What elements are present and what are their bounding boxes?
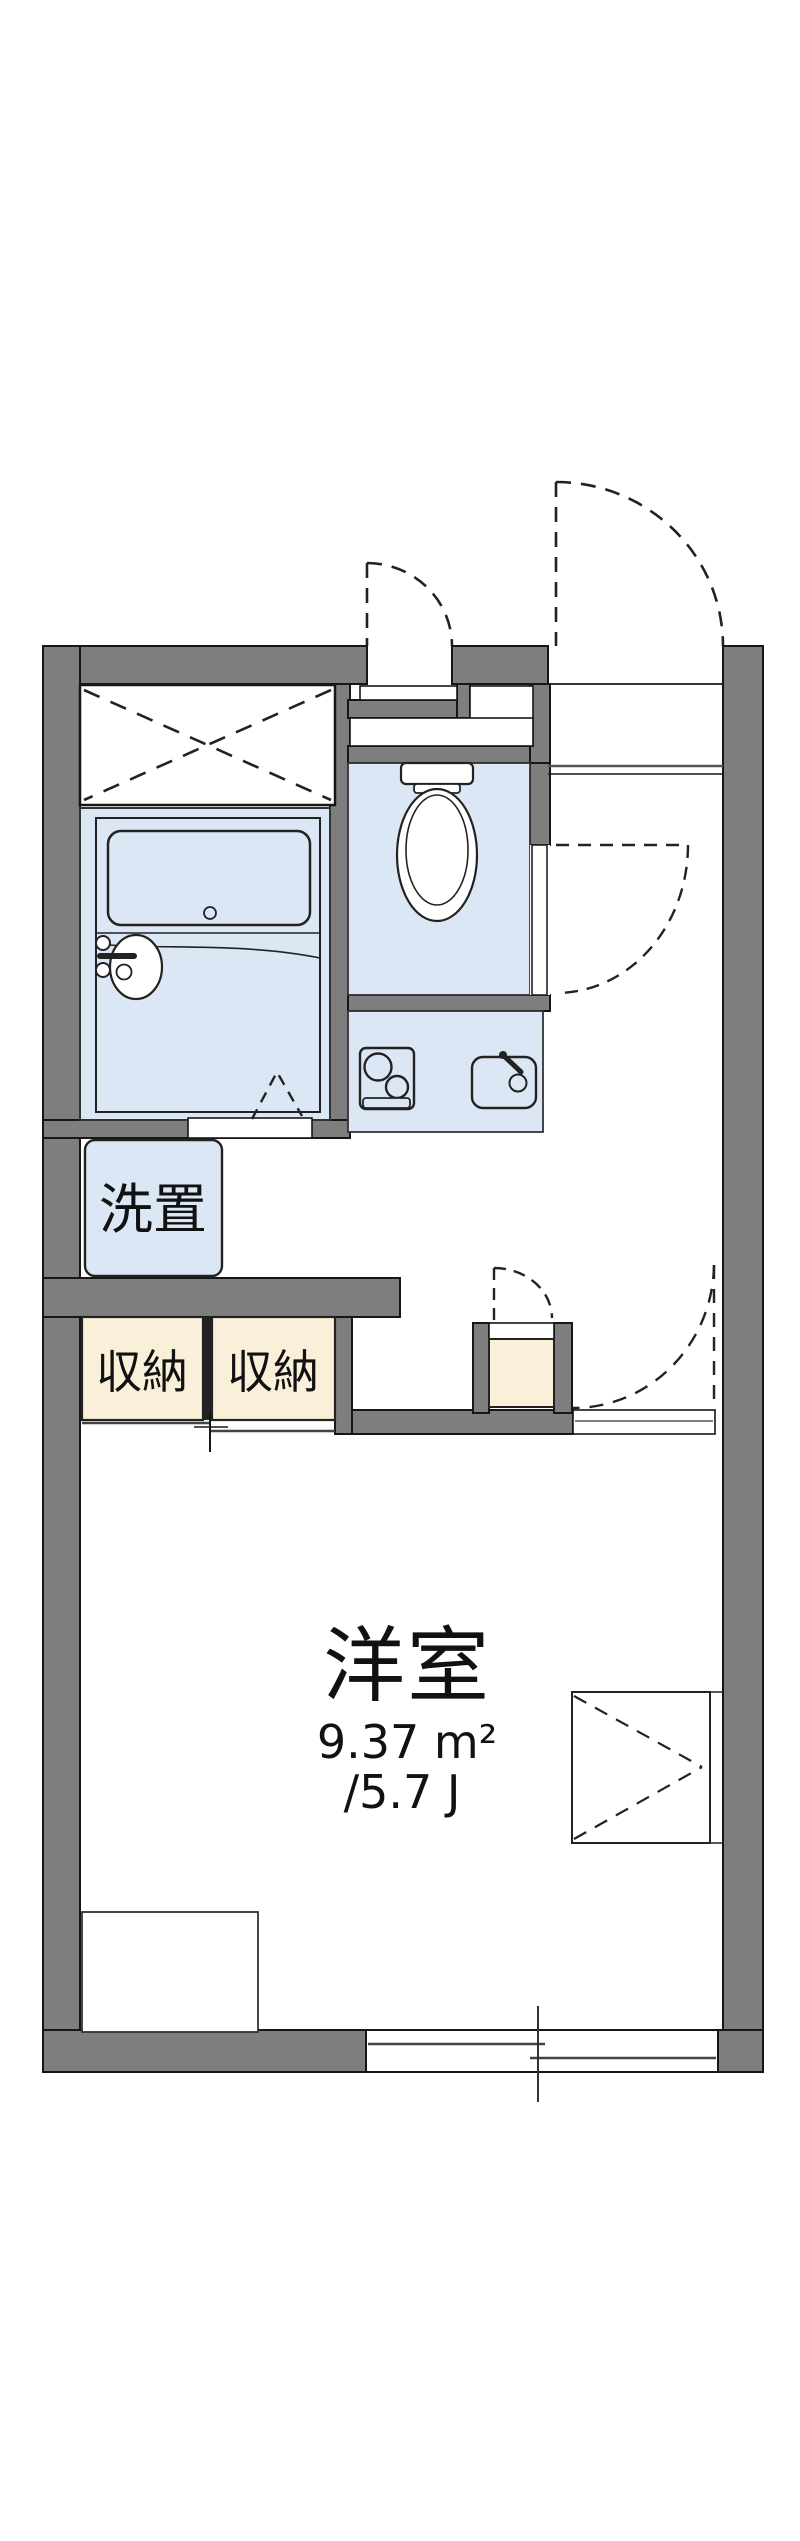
- wall-top-left: [43, 646, 367, 684]
- wall-washer-bottom-band: [43, 1278, 400, 1317]
- utility-door-swing-arc: [367, 563, 452, 646]
- wall-toilet-top-a: [348, 700, 457, 718]
- wall-top-mid: [452, 646, 548, 684]
- closet-box: [80, 685, 335, 805]
- toilet-door-swing-arc: [558, 845, 688, 993]
- wall-left: [43, 646, 80, 2072]
- wall-cabinet-ties: [710, 1692, 723, 1843]
- main-room-area-jo: /5.7 J: [344, 1765, 461, 1819]
- bathtub: [108, 831, 310, 925]
- wall-storage-right: [335, 1317, 352, 1434]
- utility-box-door-swing-arc: [494, 1268, 552, 1318]
- stove-burner-large-icon: [365, 1054, 392, 1081]
- wall-niche-slot: [350, 718, 533, 746]
- storage-right-label: 収納: [227, 1345, 319, 1399]
- wall-cabinet-box: [572, 1692, 710, 1843]
- wall-toilet-right-upper: [530, 763, 550, 845]
- wall-bottom-left: [43, 2030, 366, 2072]
- wall-toilet-top-b: [457, 684, 470, 718]
- room-door-opening: [573, 1410, 715, 1434]
- stove-burner-small-icon: [386, 1076, 408, 1098]
- wall-utility-box-left: [473, 1323, 489, 1413]
- sink-drain-icon: [510, 1075, 527, 1092]
- faucet-knob-bottom-icon: [96, 963, 110, 977]
- room-door-swing-arc: [573, 1265, 714, 1408]
- toilet-tank: [401, 763, 473, 784]
- utility-box: [489, 1339, 554, 1407]
- floor-plan-page: 洗置 収納 収納 洋室 9.37 m² /5.7 J: [0, 0, 800, 2541]
- wall-toilet-bottom: [348, 995, 550, 1011]
- washbasin-drain-icon: [117, 965, 132, 980]
- bathroom-door-opening: [188, 1118, 312, 1138]
- stove-grill: [363, 1098, 410, 1108]
- utility-door-threshold: [360, 686, 457, 700]
- storage-left-label: 収納: [96, 1345, 188, 1399]
- entrance-door-swing-arc: [556, 482, 723, 646]
- main-room-label: 洋室: [323, 1619, 491, 1714]
- wall-corridor-room: [352, 1410, 573, 1434]
- faucet-knob-top-icon: [96, 936, 110, 950]
- window-bottom-frame: [366, 2030, 718, 2072]
- storage-divider: [203, 1317, 212, 1420]
- main-room-area-m2: 9.37 m²: [317, 1715, 497, 1769]
- wall-bottom-right: [718, 2030, 763, 2072]
- furniture-rect: [82, 1912, 258, 2032]
- floor-plan-drawing: 洗置 収納 収納 洋室 9.37 m² /5.7 J: [0, 0, 800, 2541]
- washer-place-label: 洗置: [99, 1178, 207, 1241]
- wall-utility-box-right: [554, 1323, 572, 1413]
- wall-right: [723, 646, 763, 2072]
- utility-box-opening: [489, 1323, 554, 1339]
- sink-faucet-base-icon: [499, 1051, 507, 1059]
- wall-toilet-top-c: [348, 746, 550, 763]
- toilet-door-leaf: [532, 845, 547, 995]
- toilet-bowl: [397, 789, 477, 921]
